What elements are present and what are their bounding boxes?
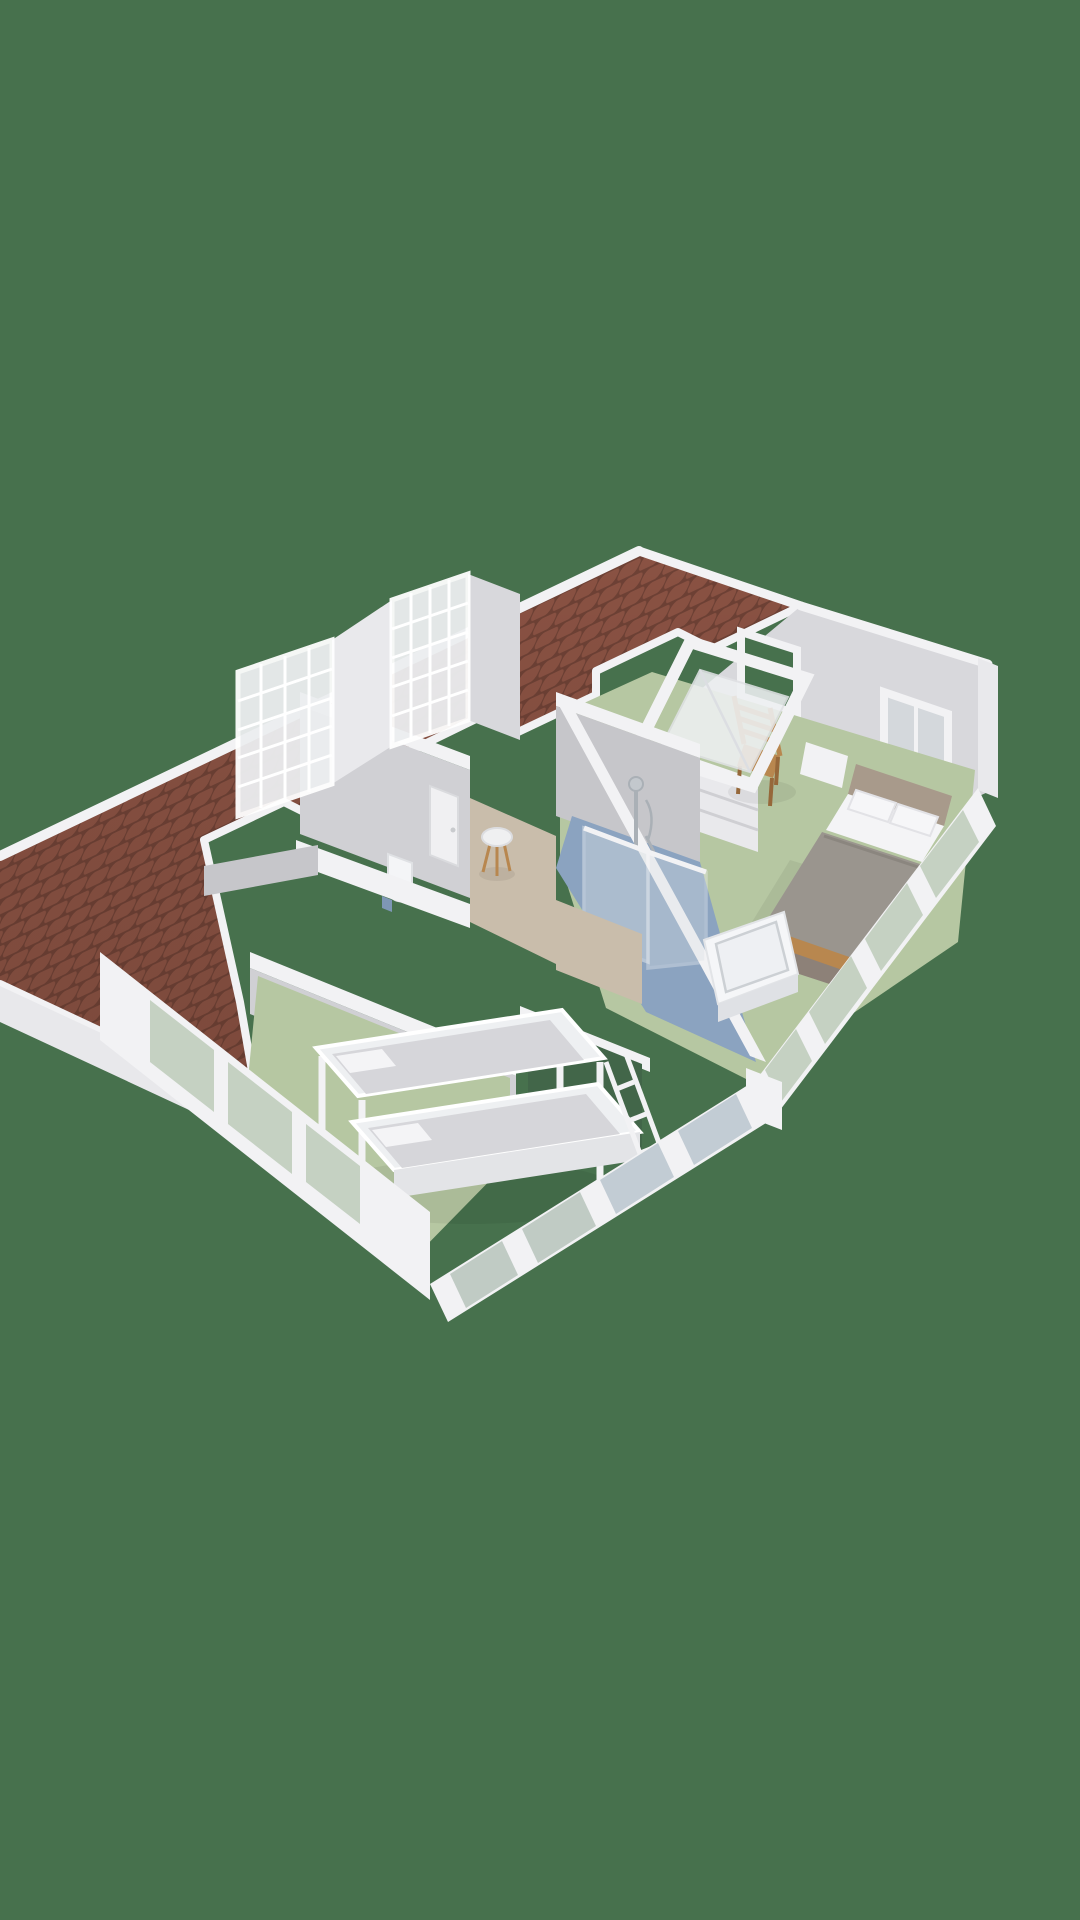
partition-side-wall <box>468 574 520 740</box>
stool-top <box>482 828 512 846</box>
right-edge-strip <box>978 658 998 798</box>
shower-head <box>629 777 643 791</box>
floorplan-render <box>0 0 1080 1920</box>
glass-grid-panel <box>392 574 468 746</box>
glass-grid-panel <box>238 640 332 816</box>
interior-door <box>430 786 458 866</box>
